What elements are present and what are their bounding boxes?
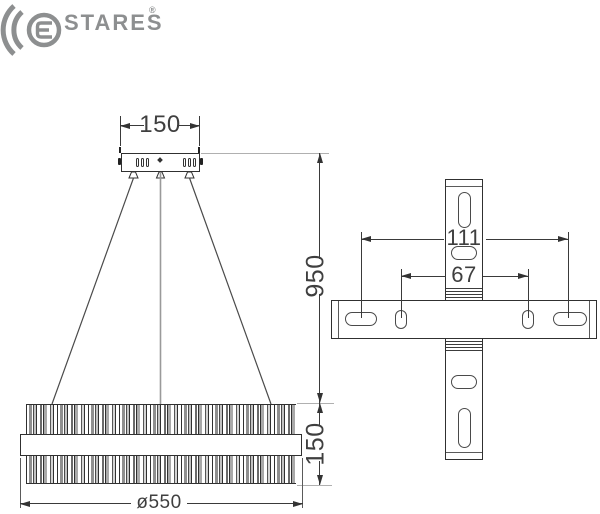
dim-arrow [361,236,371,242]
dim-outer-span-label: 111 [447,225,482,251]
dim-arrow [20,501,30,507]
extension-line [297,403,334,404]
bracket-rib-top [446,288,482,299]
dim-arrow [317,393,323,403]
crystal-band-bottom [26,456,296,484]
dimension-line [319,153,320,259]
diagram-canvas: STARES ® 150 950 150 [0,0,600,512]
dimension-line [486,239,568,240]
cable-gripper-left [129,172,138,178]
bracket-fold-line [446,452,482,453]
bracket-fold-line [338,301,339,338]
extension-line [201,153,329,154]
extension-line [568,232,569,318]
suspension-cable-right [190,178,272,404]
dim-arrow [317,475,323,485]
screw-slot-outer-right [553,312,587,326]
dim-arrow [518,273,528,279]
dim-inner-span-label: 67 [451,262,476,288]
bracket-fold-line [589,301,590,338]
dim-arrow [293,501,303,507]
dim-diameter-label: ø550 [136,492,181,514]
dimension-line [187,503,303,504]
screw-slot-vertical [458,192,471,228]
dimension-line [361,239,444,240]
dimension-line [319,294,320,403]
dim-arrow [317,153,323,163]
bracket-rib-bottom [446,341,482,352]
dim-arrow [401,273,411,279]
dim-arrow [317,403,323,413]
dim-arrow [558,236,568,242]
crystal-band-top [26,404,296,434]
extension-line [361,232,362,318]
dimension-line [20,503,131,504]
drum-frame-ring [20,434,302,456]
dim-suspension-height-label: 950 [302,254,331,297]
suspension-cable-left [52,178,134,404]
screw-slot-vertical [458,408,471,448]
cable-gripper-right [185,172,194,178]
extension-line [528,269,529,318]
bracket-fold-line [446,186,482,187]
dim-body-height-label: 150 [302,422,331,465]
screw-slot-horizontal [451,375,477,389]
